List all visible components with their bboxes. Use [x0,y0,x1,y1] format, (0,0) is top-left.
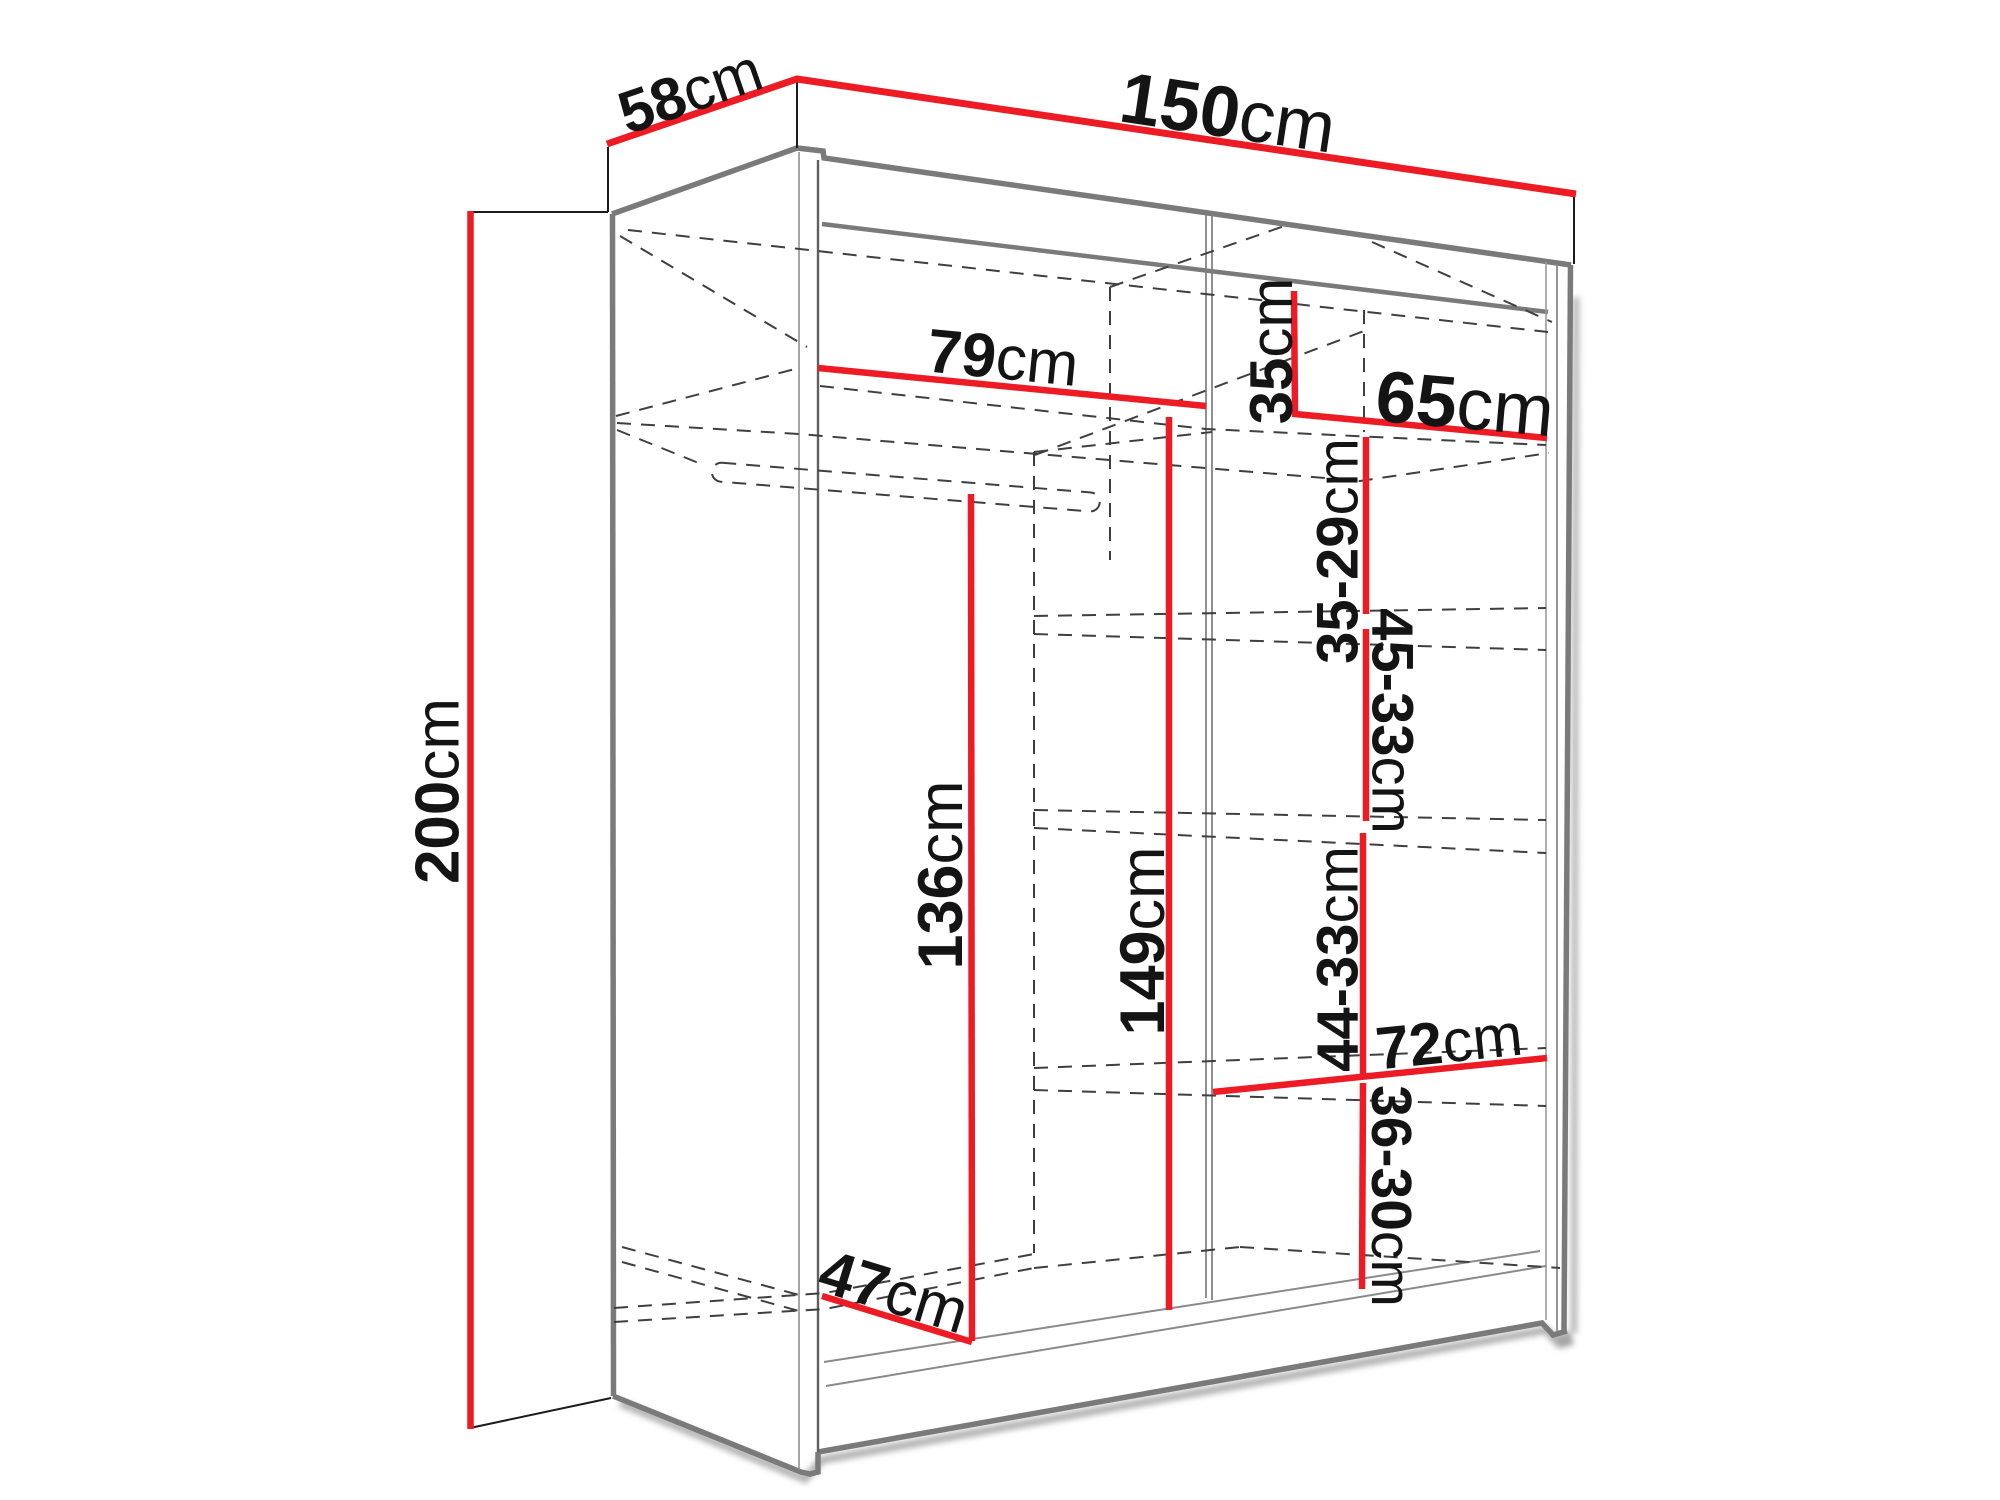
svg-text:44-33cm: 44-33cm [1305,846,1370,1072]
svg-text:149cm: 149cm [1108,846,1178,1035]
svg-text:200cm: 200cm [404,698,473,884]
svg-text:36-30cm: 36-30cm [1359,1085,1423,1307]
svg-text:136cm: 136cm [906,780,976,969]
svg-text:35cm: 35cm [1238,278,1305,425]
svg-text:79cm: 79cm [924,316,1082,399]
svg-text:45-33cm: 45-33cm [1360,608,1425,834]
svg-text:65cm: 65cm [1372,356,1557,452]
